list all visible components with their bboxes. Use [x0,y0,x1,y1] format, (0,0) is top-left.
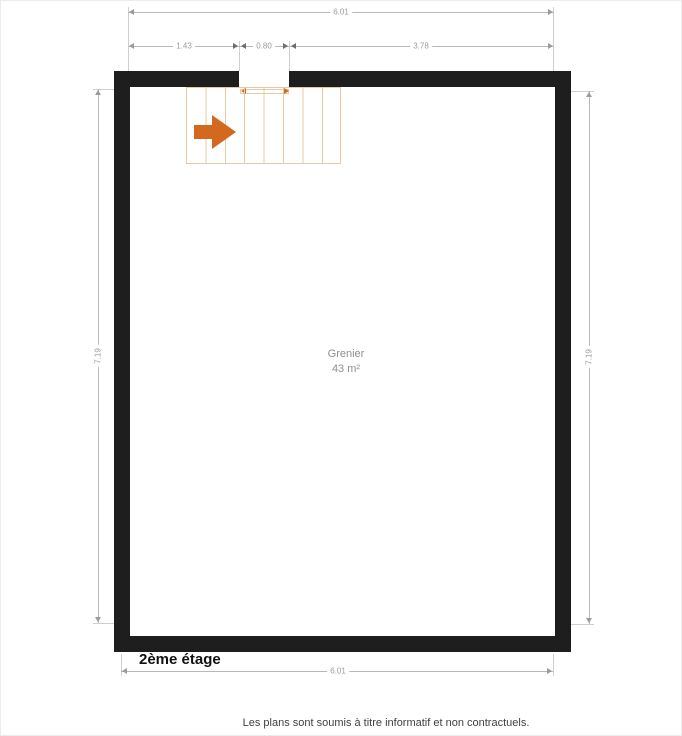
dim-arrowhead-icon [129,43,134,49]
dim-label-bottom-total: 6.01 [327,667,349,676]
wall-left [114,71,130,652]
floor-title: 2ème étage [139,651,221,668]
dim-arrowhead-icon [129,9,134,15]
disclaimer-text: Les plans sont soumis à titre informatif… [243,717,530,729]
wall-right [555,71,571,652]
wall-top-left [114,71,239,87]
dim-arrowhead-icon [283,43,288,49]
dim-label-segment-1: 1.43 [173,42,195,51]
dim-arrowhead-icon [586,92,592,97]
dim-extension-line [128,7,129,71]
stairs-direction-arrow-icon [192,113,238,151]
dim-label-right-height: 7.19 [585,346,594,368]
dim-label-segment-2: 0.80 [253,42,275,51]
dim-arrowhead-icon [547,668,552,674]
dim-arrowhead-icon [95,617,101,622]
room-label: Grenier 43 m² [328,347,365,377]
dim-extension-line [93,623,114,624]
dim-extension-line [553,654,554,676]
dim-arrowhead-icon [548,43,553,49]
dim-arrowhead-icon [548,9,553,15]
wall-bottom [114,636,571,652]
wall-top-right [289,71,571,87]
dim-arrowhead-icon [233,43,238,49]
dim-arrowhead-icon [291,43,296,49]
dim-extension-line [571,624,594,625]
dim-arrowhead-icon [586,618,592,623]
room-name: Grenier [328,347,365,362]
room-area: 43 m² [328,362,365,377]
dim-label-segment-3: 3.78 [410,42,432,51]
dim-label-left-height: 7.19 [94,345,103,367]
dim-arrowhead-icon [241,43,246,49]
dim-arrowhead-icon [95,90,101,95]
dim-extension-line [553,7,554,71]
floor-plan: 6.01 1.43 0.80 3.78 7.19 7.19 6.01 Gren [0,0,682,736]
dim-label-top-total: 6.01 [330,8,352,17]
dim-arrowhead-icon [122,668,127,674]
